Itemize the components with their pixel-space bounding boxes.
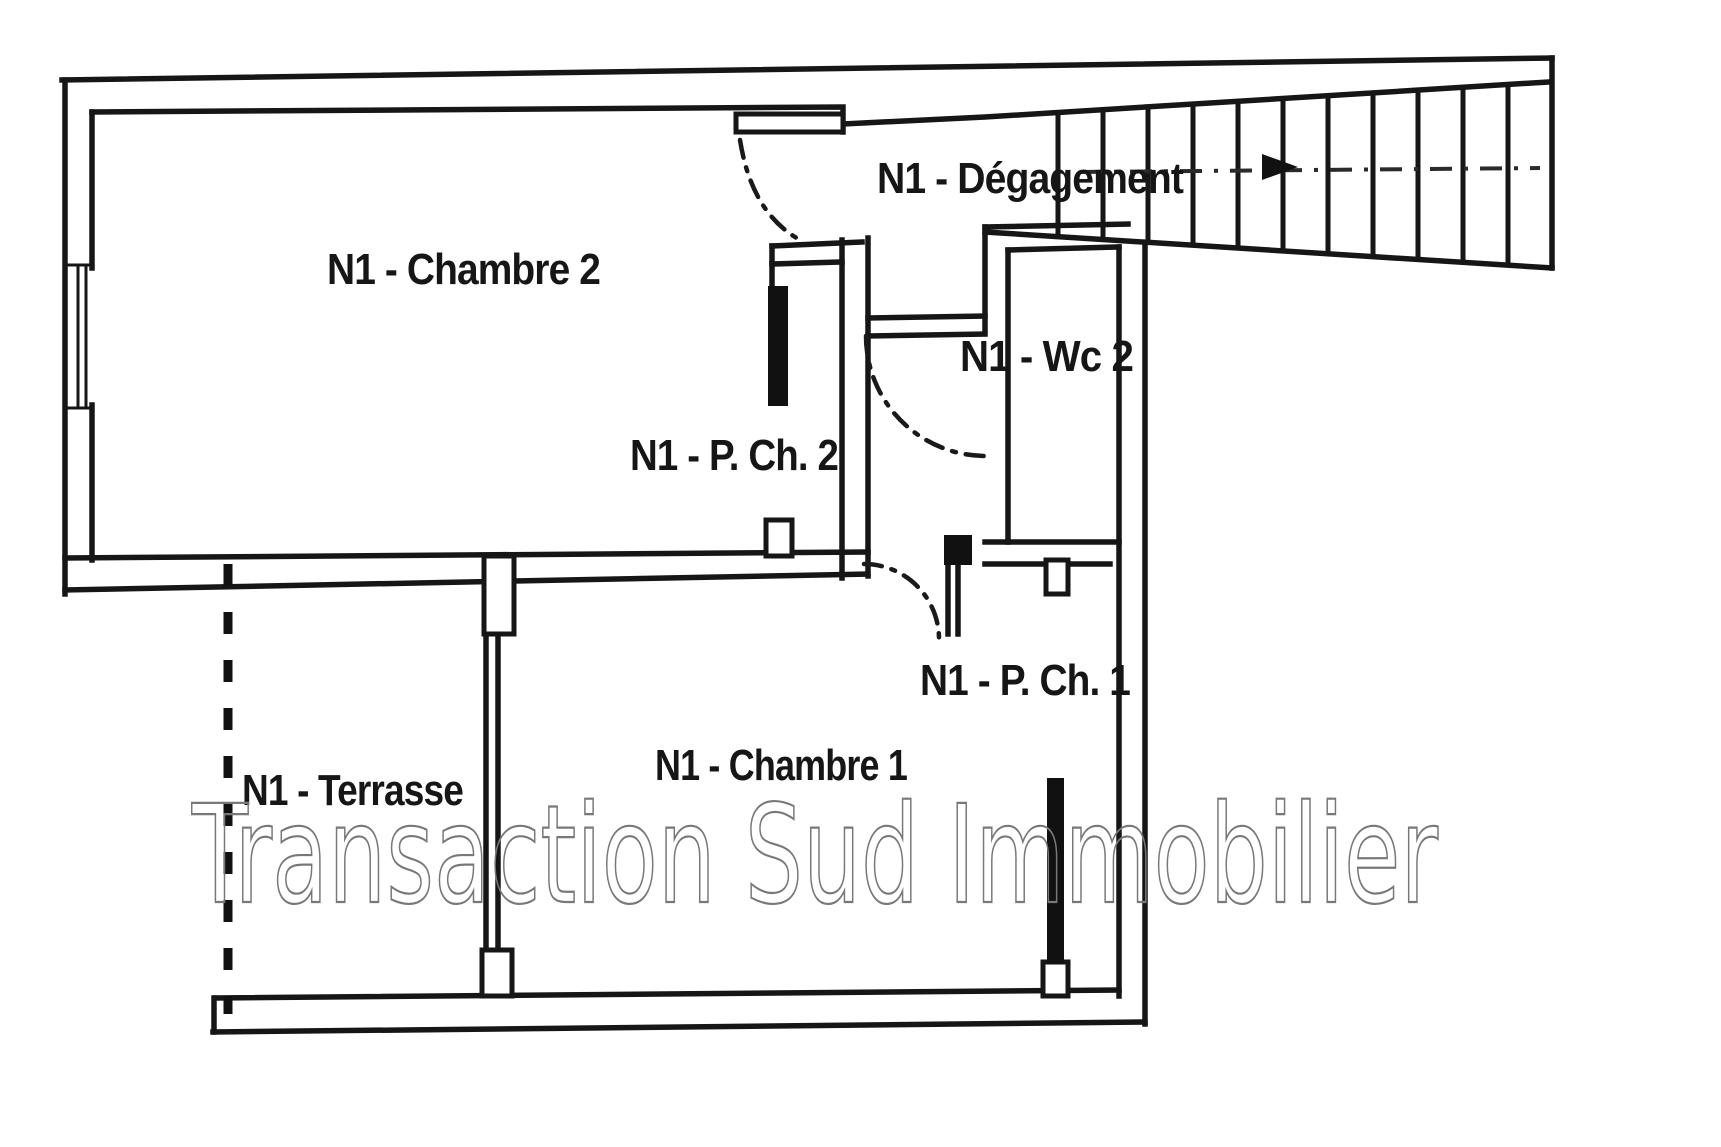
post-pch1-bar-foot bbox=[1043, 962, 1068, 996]
wall-wc2-top-inner bbox=[1008, 247, 1119, 250]
wall-pch2-cap-outer bbox=[772, 242, 862, 246]
floorplan-svg: N1 - Dégagement N1 - Chambre 2 N1 - Wc 2… bbox=[0, 0, 1721, 1147]
watermark-text: Transaction Sud Immobilier bbox=[191, 777, 1438, 935]
room-label-pch1: N1 - P. Ch. 1 bbox=[920, 656, 1130, 705]
room-label-degagement: N1 - Dégagement bbox=[877, 154, 1184, 203]
wall-bottom-outer bbox=[213, 1022, 1145, 1032]
wall-bottom-inner bbox=[216, 990, 1119, 998]
post-pch2-bottom bbox=[766, 520, 792, 556]
wall-pch2-cap-inner bbox=[772, 262, 842, 264]
wall-chambre2-bottom-inner bbox=[65, 574, 868, 590]
door-arc-chambre1 bbox=[864, 564, 939, 639]
post-chambre1-top bbox=[484, 556, 514, 634]
wall-top-outer bbox=[62, 58, 1552, 80]
wall-chambre2-bottom-outer bbox=[65, 552, 868, 558]
floorplan-scan-page: N1 - Dégagement N1 - Chambre 2 N1 - Wc 2… bbox=[0, 0, 1721, 1147]
room-labels: N1 - Dégagement N1 - Chambre 2 N1 - Wc 2… bbox=[242, 154, 1184, 815]
sliding-door-bar-pch2 bbox=[768, 286, 788, 406]
stub-cap-black bbox=[944, 535, 972, 565]
threshold-line bbox=[868, 316, 985, 318]
post-chambre1-bottom bbox=[482, 950, 512, 996]
room-label-wc2: N1 - Wc 2 bbox=[960, 332, 1133, 381]
door-arc-degagement bbox=[740, 140, 800, 240]
door-leaf-degagement bbox=[736, 114, 843, 132]
room-label-chambre2: N1 - Chambre 2 bbox=[327, 245, 600, 294]
room-label-pch2: N1 - P. Ch. 2 bbox=[630, 431, 838, 480]
wall-top-inner bbox=[92, 107, 843, 132]
stair-direction-arrow-icon bbox=[1262, 154, 1298, 180]
window-left-wall bbox=[65, 265, 92, 408]
post-pch1-door bbox=[1046, 560, 1068, 594]
